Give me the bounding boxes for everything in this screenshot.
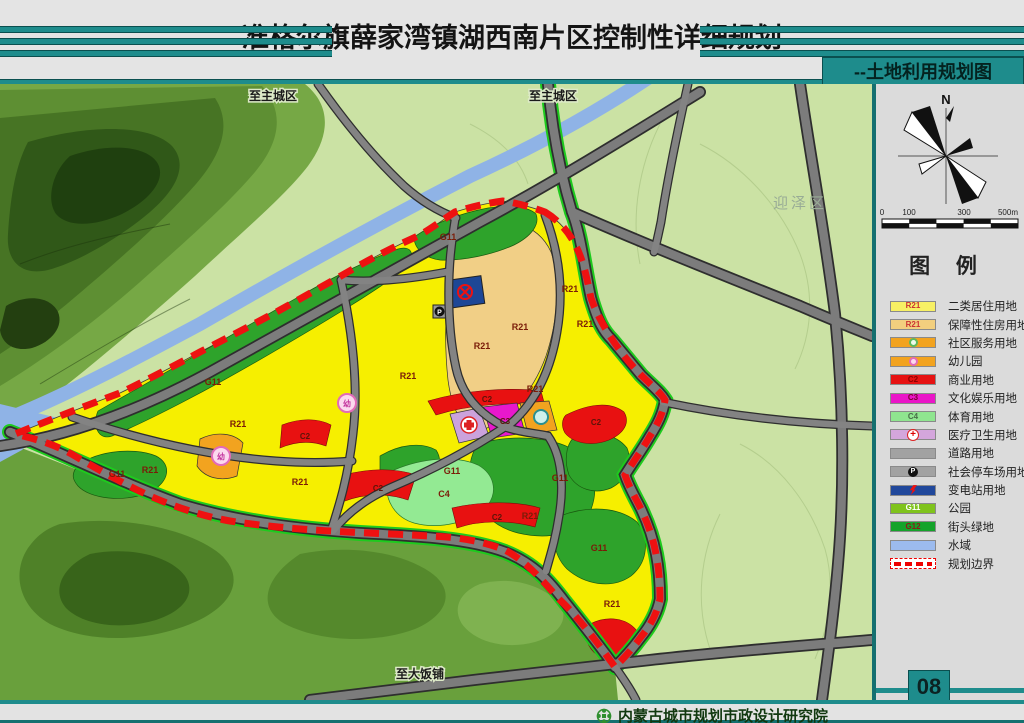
legend-label: 公园	[948, 500, 971, 516]
to-main-city-left: 至主城区	[249, 88, 297, 103]
legend-swatch: R21	[890, 319, 936, 330]
legend-item: 变电站用地	[890, 481, 1024, 499]
legend-swatch-code: C3	[908, 394, 918, 402]
svg-text:100: 100	[902, 208, 916, 217]
legend-swatch: +	[890, 429, 936, 440]
svg-text:R21: R21	[604, 599, 621, 609]
north-arrow: N	[878, 94, 1018, 206]
svg-text:R21: R21	[400, 371, 417, 381]
svg-text:G11: G11	[440, 232, 457, 242]
substation-bolt-icon	[909, 485, 917, 495]
svg-text:500m: 500m	[998, 208, 1018, 217]
legend-label: 保障性住房用地	[948, 317, 1024, 333]
legend-item: P社会停车场用地	[890, 463, 1024, 481]
svg-text:C3: C3	[500, 417, 511, 426]
legend-item: R21二类居住用地	[890, 297, 1024, 315]
svg-text:幼: 幼	[343, 399, 351, 409]
legend-label: 道路用地	[948, 445, 994, 461]
institute-name: 内蒙古城市规划市政设计研究院	[618, 705, 828, 723]
legend-swatch: C3	[890, 393, 936, 404]
svg-text:R21: R21	[474, 341, 491, 351]
legend-label: 规划边界	[948, 556, 994, 572]
svg-text:R21: R21	[142, 465, 159, 475]
svg-text:C2: C2	[492, 513, 503, 522]
svg-text:G11: G11	[205, 377, 222, 387]
legend-swatch	[890, 558, 936, 569]
legend-title: 图 例	[872, 250, 1024, 280]
community-circle-icon	[909, 338, 918, 347]
to-dafanpu: 至大饭铺	[396, 666, 444, 681]
svg-text:G11: G11	[552, 473, 569, 483]
legend-item: 水域	[890, 536, 1024, 554]
legend-item: R21保障性住房用地	[890, 315, 1024, 333]
legend-label: 体育用地	[948, 409, 994, 425]
community-service-icon	[534, 410, 548, 424]
svg-text:300: 300	[957, 208, 971, 217]
legend-swatch: R21	[890, 301, 936, 312]
legend-swatch	[890, 337, 936, 348]
svg-text:C4: C4	[438, 489, 450, 499]
legend-item: G11公园	[890, 499, 1024, 517]
legend-swatch: P	[890, 466, 936, 477]
legend-swatch-code: C2	[908, 376, 918, 384]
legend-swatch	[890, 540, 936, 551]
page-number: 08	[908, 670, 950, 704]
svg-text:C2: C2	[591, 418, 602, 427]
legend-item: C3文化娱乐用地	[890, 389, 1024, 407]
landuse-map: P 幼 幼 R21 R21 R21 R21 R21 R21 R21 R21 R2…	[0, 84, 872, 700]
legend-swatch-code: G12	[905, 523, 920, 531]
title-rule-right-3	[700, 50, 1024, 57]
svg-text:C2: C2	[373, 484, 384, 493]
title-rule-right-1	[700, 26, 1024, 33]
boundary-dash-icon	[894, 562, 932, 566]
svg-text:R21: R21	[522, 511, 539, 521]
kindergarten-circle-icon	[909, 357, 918, 366]
legend-item: 道路用地	[890, 444, 1024, 462]
map-subtitle: --土地利用规划图	[822, 57, 1024, 85]
legend-item: +医疗卫生用地	[890, 426, 1024, 444]
svg-text:R21: R21	[577, 319, 594, 329]
svg-text:G11: G11	[591, 543, 608, 553]
legend-label: 文化娱乐用地	[948, 390, 1017, 406]
legend-item: 幼儿园	[890, 352, 1024, 370]
page-number-rule	[876, 688, 1024, 693]
svg-text:幼: 幼	[217, 452, 225, 462]
planning-map-sheet: { "header": { "title": "准格尔旗薛家湾镇湖西南片区控制性…	[0, 0, 1024, 723]
legend-label: 二类居住用地	[948, 298, 1017, 314]
legend-swatch-code: R21	[906, 302, 921, 310]
svg-text:0: 0	[880, 208, 885, 217]
svg-text:C2: C2	[300, 432, 311, 441]
svg-text:P: P	[437, 310, 442, 317]
scale-bar: 0 100 300 500m	[876, 206, 1024, 236]
legend-swatch: G12	[890, 521, 936, 532]
legend-item: C2商业用地	[890, 371, 1024, 389]
legend-swatch: G11	[890, 503, 936, 514]
legend-label: 商业用地	[948, 372, 994, 388]
institute-logo-icon	[596, 708, 612, 723]
legend-item: C4体育用地	[890, 407, 1024, 425]
medical-cross-icon: +	[907, 429, 919, 441]
svg-text:G11: G11	[109, 469, 126, 479]
legend-swatch-code: R21	[906, 321, 921, 329]
svg-text:R21: R21	[230, 419, 247, 429]
district-label: 迎泽区	[773, 195, 827, 212]
legend-label: 水域	[948, 537, 971, 553]
legend-list: R21二类居住用地R21保障性住房用地社区服务用地幼儿园C2商业用地C3文化娱乐…	[890, 297, 1024, 573]
legend-label: 社区服务用地	[948, 335, 1017, 351]
title-rule-left-1	[0, 26, 332, 33]
title-rule-right-2	[700, 38, 1024, 45]
legend-label: 医疗卫生用地	[948, 427, 1017, 443]
legend-label: 社会停车场用地	[948, 464, 1024, 480]
legend-swatch	[890, 448, 936, 459]
svg-text:R21: R21	[527, 384, 544, 394]
footer: 内蒙古城市规划市政设计研究院	[0, 700, 1024, 723]
svg-text:R21: R21	[292, 477, 309, 487]
svg-text:R21: R21	[562, 284, 579, 294]
legend-label: 幼儿园	[948, 353, 983, 369]
title-rule-left-2	[0, 38, 332, 45]
to-main-city-right: 至主城区	[529, 88, 577, 103]
north-label: N	[941, 94, 950, 107]
legend-label: 变电站用地	[948, 482, 1006, 498]
legend-swatch	[890, 485, 936, 496]
title-rule-left-3	[0, 50, 332, 57]
legend-swatch	[890, 356, 936, 367]
legend-item: 规划边界	[890, 554, 1024, 572]
north-tip-icon	[946, 106, 954, 122]
legend-swatch-code: C4	[908, 413, 918, 421]
svg-text:G11: G11	[444, 466, 461, 476]
svg-text:R21: R21	[512, 322, 529, 332]
legend-label: 街头绿地	[948, 519, 994, 535]
legend-item: 社区服务用地	[890, 334, 1024, 352]
legend-item: G12街头绿地	[890, 518, 1024, 536]
parking-circle-icon: P	[908, 467, 918, 477]
legend-swatch-code: G11	[906, 504, 921, 512]
legend-swatch: C2	[890, 374, 936, 385]
svg-text:C2: C2	[482, 395, 493, 404]
legend-swatch: C4	[890, 411, 936, 422]
